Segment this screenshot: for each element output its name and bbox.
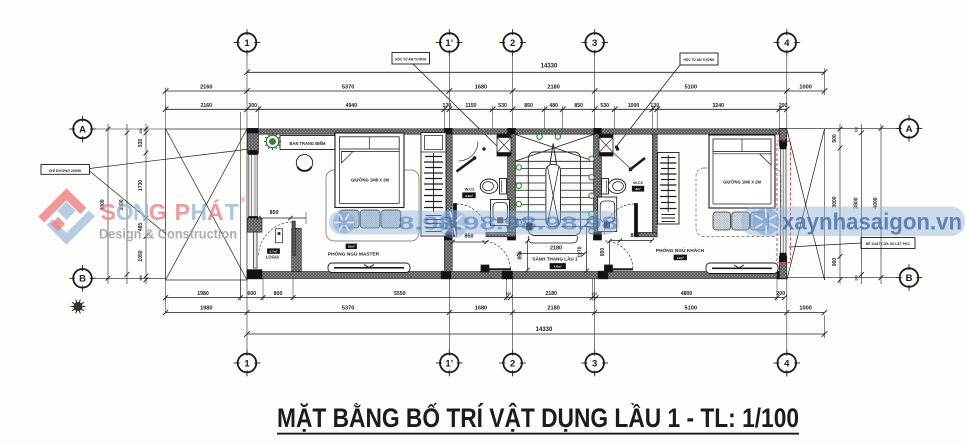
svg-text:14m²: 14m² [677, 256, 684, 260]
svg-text:14330: 14330 [541, 64, 558, 70]
svg-text:100: 100 [854, 275, 858, 281]
svg-text:Design & Construction: Design & Construction [99, 227, 237, 242]
svg-text:100: 100 [139, 128, 143, 134]
svg-text:2180: 2180 [547, 306, 559, 312]
svg-text:xaynhasaigon.vn: xaynhasaigon.vn [782, 209, 962, 235]
svg-text:16m²: 16m² [348, 245, 355, 249]
svg-text:MẶT BẰNG BỐ TRÍ VẬT DỤNG LẦU 1: MẶT BẰNG BỐ TRÍ VẬT DỤNG LẦU 1 - TL: 1/1… [277, 401, 799, 433]
svg-text:14330: 14330 [536, 327, 553, 333]
svg-text:1050: 1050 [138, 250, 144, 261]
svg-text:CHỈ DƯƠNG 20X50: CHỈ DƯƠNG 20X50 [49, 168, 82, 173]
svg-text:H: H [190, 199, 207, 225]
svg-text:850: 850 [518, 251, 524, 260]
svg-text:3.2m²: 3.2m² [465, 194, 473, 198]
svg-text:SẢNH THANG LẦU 1: SẢNH THANG LẦU 1 [532, 255, 578, 261]
svg-text:S: S [101, 199, 116, 225]
svg-text:1680: 1680 [475, 306, 487, 312]
svg-text:850: 850 [600, 248, 606, 257]
svg-text:500: 500 [832, 134, 838, 143]
svg-text:100: 100 [139, 275, 143, 281]
svg-text:4800: 4800 [681, 291, 693, 297]
svg-text:B: B [79, 274, 86, 285]
svg-text:1: 1 [244, 38, 250, 49]
svg-text:1000: 1000 [799, 84, 811, 90]
svg-text:HỘC TỦ ÂM TƯỜNG: HỘC TỦ ÂM TƯỜNG [683, 57, 715, 62]
svg-text:4.6m²: 4.6m² [554, 265, 562, 269]
svg-text:535: 535 [138, 139, 144, 148]
svg-text:4: 4 [784, 358, 790, 369]
svg-text:W.C2: W.C2 [465, 187, 476, 192]
svg-text:1980: 1980 [200, 306, 212, 312]
svg-text:LOGIA: LOGIA [266, 255, 279, 260]
svg-text:530: 530 [498, 103, 507, 109]
svg-text:5370: 5370 [342, 84, 354, 90]
svg-text:N: N [133, 199, 150, 225]
svg-text:200: 200 [779, 103, 788, 109]
svg-text:G: G [149, 199, 167, 225]
svg-text:100: 100 [854, 127, 858, 133]
svg-text:3: 3 [592, 38, 597, 49]
svg-text:600: 600 [247, 291, 256, 297]
svg-text:ĐỀ XUẤT CỬA SỔ LẬT P.KC: ĐỀ XUẤT CỬA SỔ LẬT P.KC [866, 241, 911, 246]
svg-text:1: 1 [244, 358, 250, 369]
svg-text:1980: 1980 [197, 291, 209, 297]
svg-text:HỘC TỦ ÂM TƯỜNG: HỘC TỦ ÂM TƯỜNG [395, 56, 427, 61]
svg-text:3240: 3240 [712, 103, 724, 109]
svg-text:300: 300 [248, 103, 257, 109]
svg-text:4940: 4940 [346, 103, 358, 109]
svg-text:850: 850 [631, 233, 640, 239]
svg-text:GIƯỜNG 1M8 X 2M: GIƯỜNG 1M8 X 2M [351, 178, 390, 183]
svg-text:1’: 1’ [445, 38, 453, 49]
svg-text:O: O [116, 199, 134, 225]
svg-text:5100: 5100 [685, 306, 697, 312]
svg-text:2160: 2160 [200, 84, 212, 90]
svg-text:2180: 2180 [547, 84, 559, 90]
svg-text:A: A [79, 124, 86, 135]
svg-text:2: 2 [510, 358, 515, 369]
svg-text:W.C3: W.C3 [633, 180, 644, 185]
svg-text:530: 530 [600, 103, 609, 109]
svg-text:T: T [225, 199, 239, 225]
svg-text:3: 3 [592, 358, 597, 369]
svg-text:200: 200 [776, 291, 785, 297]
svg-text:GIƯỜNG 1M6 X 2M: GIƯỜNG 1M6 X 2M [723, 180, 762, 185]
svg-text:800: 800 [274, 291, 283, 297]
svg-text:A: A [906, 124, 913, 135]
svg-text:3m²: 3m² [635, 187, 640, 191]
svg-text:2: 2 [510, 38, 515, 49]
svg-text:5370: 5370 [342, 306, 354, 312]
svg-text:1730: 1730 [138, 180, 144, 191]
svg-text:1000: 1000 [628, 103, 640, 109]
svg-text:Á: Á [207, 198, 224, 225]
svg-text:5550: 5550 [394, 291, 406, 297]
svg-text:850: 850 [524, 103, 533, 109]
svg-text:P: P [175, 199, 190, 225]
svg-text:1’: 1’ [445, 358, 453, 369]
svg-text:2160: 2160 [201, 103, 213, 109]
svg-text:2180: 2180 [550, 245, 562, 251]
svg-text:B: B [906, 273, 913, 284]
svg-text:0.7m²: 0.7m² [270, 249, 278, 253]
svg-text:1150: 1150 [465, 103, 476, 109]
svg-text:480: 480 [549, 103, 558, 109]
svg-text:5100: 5100 [685, 84, 697, 90]
svg-text:BÀN TRANG ĐIỂM: BÀN TRANG ĐIỂM [290, 141, 327, 146]
svg-text:2180: 2180 [546, 291, 558, 297]
svg-text:4: 4 [784, 38, 790, 49]
svg-text:1270: 1270 [578, 246, 584, 257]
svg-text:850: 850 [574, 103, 583, 109]
svg-text:850: 850 [270, 210, 279, 216]
svg-text:3000: 3000 [832, 196, 838, 207]
svg-text:900: 900 [832, 258, 838, 267]
svg-text:1000: 1000 [799, 306, 811, 312]
svg-text:®: ® [240, 196, 246, 204]
svg-text:1680: 1680 [475, 84, 487, 90]
svg-text:8.98.98.98.98.98: 8.98.98.98.98.98 [398, 213, 618, 234]
